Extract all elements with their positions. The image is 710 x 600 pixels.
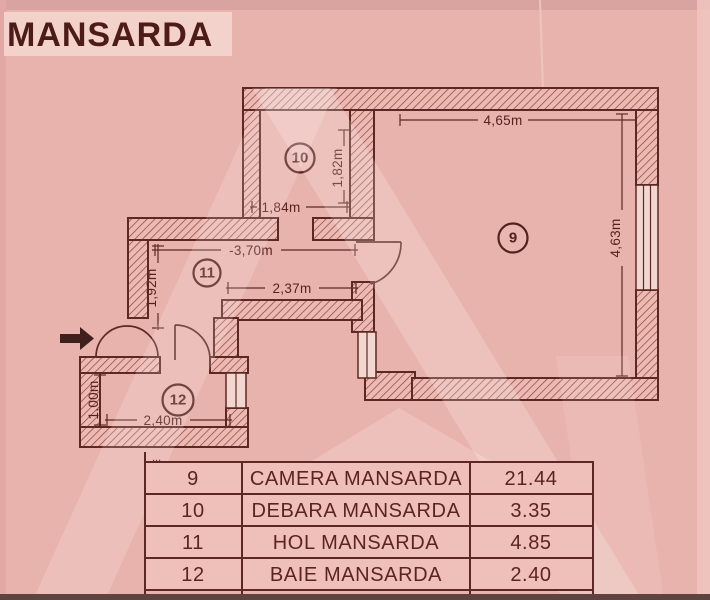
room-area-cell: 3.35 [510,500,551,522]
dimension-label: 4,63m [608,218,623,257]
wall [636,110,658,185]
room-number-cell: 12 [181,564,204,586]
room-number-badge-camera: 9 [499,224,528,253]
room-area-cell: 2.40 [510,564,551,586]
wall [636,290,658,378]
dimension-label: 4,65m [483,113,522,128]
room-area-cell: 4.85 [510,532,551,554]
room-name-cell: BAIE MANSARDA [270,564,442,586]
dimension-label: 1,00m [86,380,101,419]
room-name-cell: CAMERA MANSARDA [250,468,462,490]
paper-top-edge [0,0,710,10]
room-number-cell: 9 [187,468,199,490]
dimension-label: 2,37m [272,281,311,296]
table-cutoff-dots: ... [152,452,161,464]
wall [222,300,362,320]
scanned-floor-plan-page: MANSARDA [0,0,710,600]
paper-right-edge [697,0,710,600]
room-number-cell: 11 [182,532,204,554]
paper-left-edge [0,0,6,600]
wall [226,408,248,427]
svg-text:9: 9 [509,230,517,247]
room-name-cell: DEBARA MANSARDA [251,500,460,522]
paper-bottom-shadow [0,594,710,600]
page-title: MANSARDA [7,16,213,54]
dimension-label: 1,92m [144,268,159,307]
window-symbol [358,332,376,378]
area-table: ... 9 CAMERA MANSARDA 21.44 10 DEBARA MA… [145,452,593,597]
window-symbol [226,373,246,408]
room-name-cell: HOL MANSARDA [273,532,440,554]
wall [210,357,248,373]
room-area-cell: 21.44 [504,468,557,490]
room-number-cell: 10 [181,500,204,522]
floor-plan-canvas: MANSARDA [0,0,710,600]
window-symbol [636,185,658,290]
